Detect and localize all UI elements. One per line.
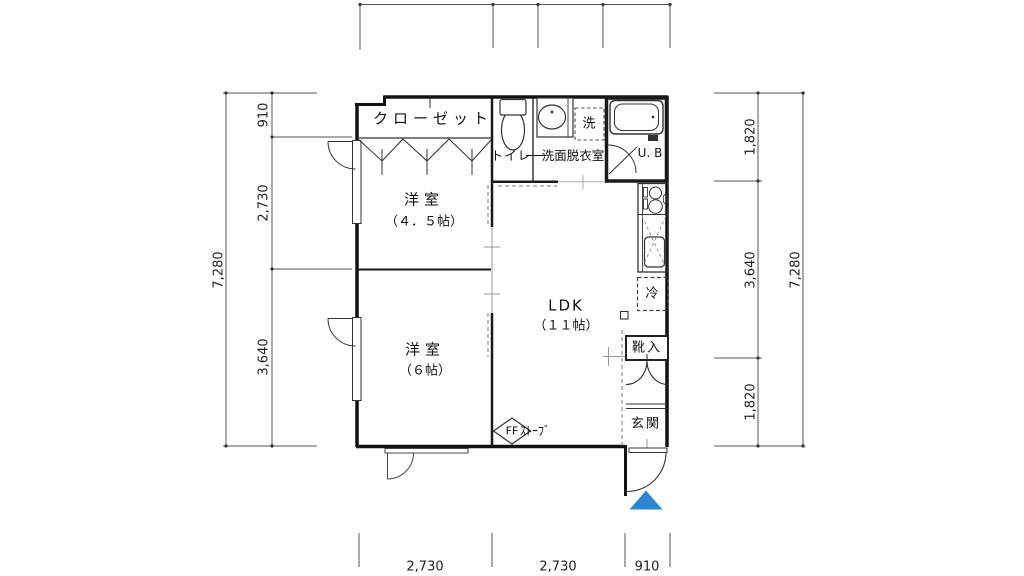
dim-left-seg-2: 3,640 [258,338,271,375]
unit-bath-label: U. B [638,147,663,159]
closet-label: クローゼット [373,112,493,127]
room1-name-label: 洋室 [404,193,444,208]
toilet-icon [500,100,526,151]
dim-bottom-seg-0: 2,730 [406,561,443,574]
kitchen-sink-icon [645,237,665,267]
closet-hanger-icon [358,96,491,175]
dim-right-seg-2: 1,820 [745,383,758,420]
entrance-marker-icon [630,491,663,510]
dim-left-total: 7,280 [213,251,226,288]
fridge-label: 冷 [645,288,658,301]
kitchen-counter-icon [638,184,668,273]
dim-right-seg-0: 1,820 [745,118,758,155]
dim-bottom-seg-1: 2,730 [539,561,576,574]
shoebox-label: 靴入 [632,342,662,355]
ldk-size-label: （１１帖） [533,320,598,333]
washbasin-icon [537,98,573,137]
entrance-label: 玄関 [631,418,661,431]
dimension-lines [223,5,805,568]
dim-right-total: 7,280 [790,251,803,288]
floorplan-linework [0,0,1024,576]
pillar-marker [621,312,629,320]
laundry-label: 洗 [582,118,595,131]
room2-size-label: （６帖） [399,365,451,378]
ff-stove-symbol: FF [506,426,519,437]
ldk-name-label: LDK [548,299,584,314]
dim-left-seg-0: 910 [258,103,271,128]
stove-burner [649,200,663,214]
dim-right-seg-1: 3,640 [745,251,758,288]
washroom-label: 洗面脱衣室 [542,150,605,163]
bottom-door [385,449,468,480]
dim-left-seg-1: 2,730 [258,184,271,221]
room2-name-label: 洋室 [405,343,445,358]
room1-size-label: （４．５帖） [385,216,463,229]
dimension-ticks [224,3,804,448]
dim-bottom-seg-2: 910 [635,561,660,574]
toilet-label: トイレ [491,150,532,163]
stove-burner [650,187,662,199]
floorplan-canvas: クローゼット トイレ 洗面脱衣室 洗 U. B 洋室 （４．５帖） LDK （１… [0,0,1024,576]
ff-stove-label: ｽﾄｰﾌﾞ [520,425,550,437]
